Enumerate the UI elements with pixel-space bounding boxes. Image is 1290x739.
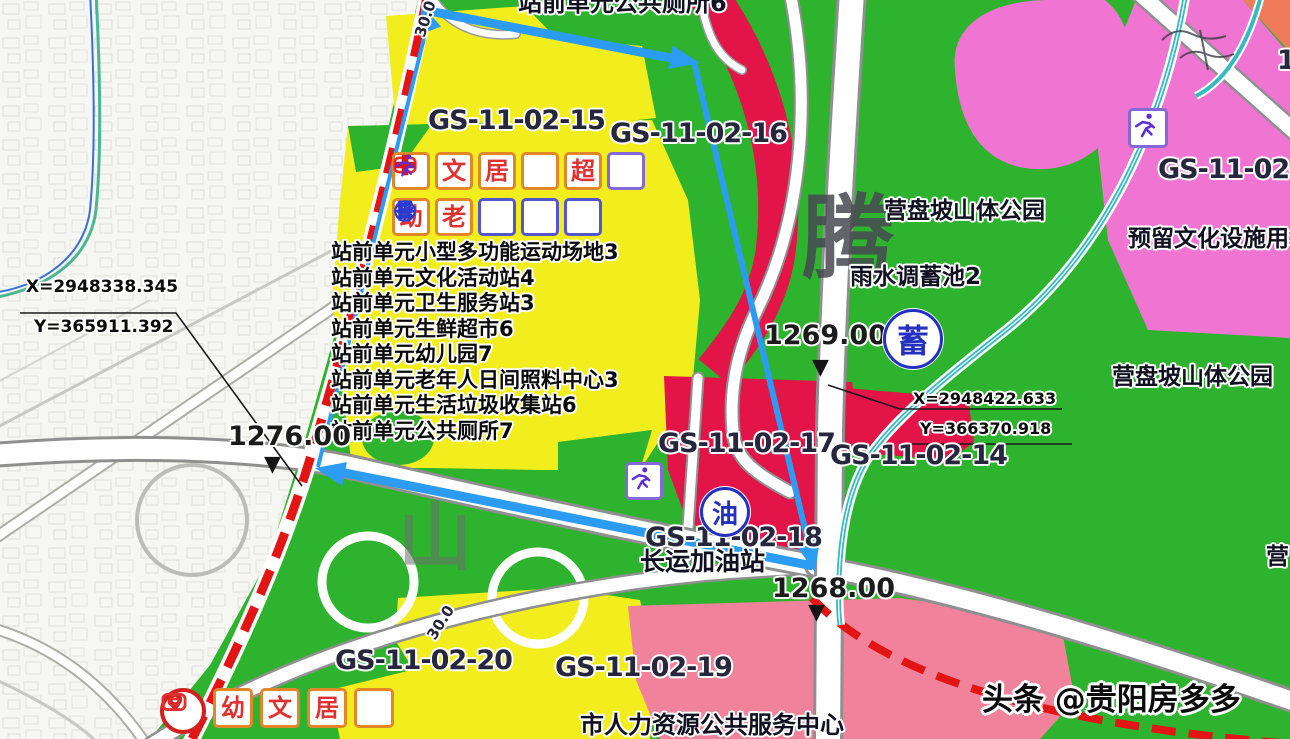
- facility-list-item: 站前单元小型多功能运动场地3: [331, 240, 619, 266]
- reservoir-badge: 蓄: [883, 309, 943, 369]
- clinic-cross-icon: [521, 152, 559, 190]
- elevation-1276: 1276.00: [228, 421, 351, 452]
- facility-list: 站前单元小型多功能运动场地3 站前单元文化活动站4 站前单元卫生服务站3 站前单…: [331, 240, 619, 444]
- facility-icon-row-2: 幼 老: [392, 198, 602, 236]
- parcel-label-gs-11-02-20: GS-11-02-20: [335, 645, 512, 676]
- hill-park-partial-label: 营: [1266, 544, 1289, 570]
- elevation-marker-1268: ▼: [808, 600, 825, 625]
- facility-icon-row-1: 文 居 超: [392, 152, 645, 190]
- elevation-marker-1276: ▼: [264, 452, 281, 477]
- parcel-label-right-partial: GS-11-02-: [1158, 154, 1290, 185]
- hr-center-label: 市人力资源公共服务中心: [580, 712, 844, 739]
- facility-list-item: 站前单元生活垃圾收集站6: [331, 393, 619, 419]
- planning-map-screenshot: 腾 山 GS-11-02-15 GS-11-02-16 GS-11-02-17 …: [0, 0, 1290, 739]
- toilet-icon: [354, 688, 394, 728]
- wheel-icon: [564, 198, 602, 236]
- parcel-label-gs-11-02-15: GS-11-02-15: [428, 105, 605, 136]
- public-toilet-wc-icon: [521, 198, 559, 236]
- sports-icon: [607, 152, 645, 190]
- hill-park-right-label: 营盘坡山体公园: [1112, 364, 1273, 390]
- coordinate-right-y: Y=366370.918: [920, 420, 1051, 438]
- parcel-label-gs-11-02-14: GS-11-02-14: [830, 440, 1007, 471]
- gas-station-label: 长运加油站: [640, 548, 765, 577]
- coordinate-left-x: X=2948338.345: [26, 278, 178, 298]
- facility-icon-row-bottom: 幼 文 居: [160, 688, 394, 734]
- reserved-culture-label: 预留文化设施用地: [1128, 226, 1290, 252]
- facility-list-item: 站前单元生鲜超市6: [331, 317, 619, 343]
- sports-icon: [625, 462, 663, 500]
- residence-icon: 居: [478, 152, 516, 190]
- sports-icon: [1128, 108, 1168, 148]
- oil-station-badge: 油: [700, 487, 750, 537]
- elevation-1268: 1268.00: [772, 573, 895, 604]
- facility-list-item: 站前单元公共厕所7: [331, 419, 619, 445]
- parcel-label-gs-11-02-19: GS-11-02-19: [555, 652, 732, 683]
- culture-icon: 文: [435, 152, 473, 190]
- parcel-label-gs-11-02-17: GS-11-02-17: [658, 428, 835, 459]
- facility-list-item: 站前单元老年人日间照料中心3: [331, 368, 619, 394]
- facility-list-item: 站前单元幼儿园7: [331, 342, 619, 368]
- supermarket-icon: 超: [564, 152, 602, 190]
- coordinate-left-y: Y=365911.392: [34, 318, 173, 338]
- watermark-character-shan: 山: [398, 478, 472, 585]
- waste-collection-icon: [478, 198, 516, 236]
- elderly-icon: 老: [435, 198, 473, 236]
- rain-pool-label: 雨水调蓄池2: [850, 264, 981, 290]
- culture-icon: 文: [260, 688, 300, 728]
- parcel-label-topright-partial: 1: [1277, 45, 1290, 76]
- elevation-1269: 1269.00: [764, 320, 887, 351]
- elevation-marker-1269: ▼: [812, 355, 829, 380]
- residence-icon: 居: [307, 688, 347, 728]
- hill-park-label: 营盘坡山体公园: [884, 198, 1045, 224]
- credit-watermark: 头条 @贵阳房多多: [982, 674, 1241, 719]
- top-edge-label: 站前单元公共厕所6: [518, 0, 727, 18]
- facility-list-item: 站前单元卫生服务站3: [331, 291, 619, 317]
- coordinate-right-x: X=2948422.633: [913, 390, 1056, 408]
- parcel-label-gs-11-02-16: GS-11-02-16: [610, 118, 787, 149]
- kindergarten-icon: 幼: [213, 688, 253, 728]
- map-canvas: [0, 0, 1290, 739]
- facility-list-item: 站前单元文化活动站4: [331, 266, 619, 292]
